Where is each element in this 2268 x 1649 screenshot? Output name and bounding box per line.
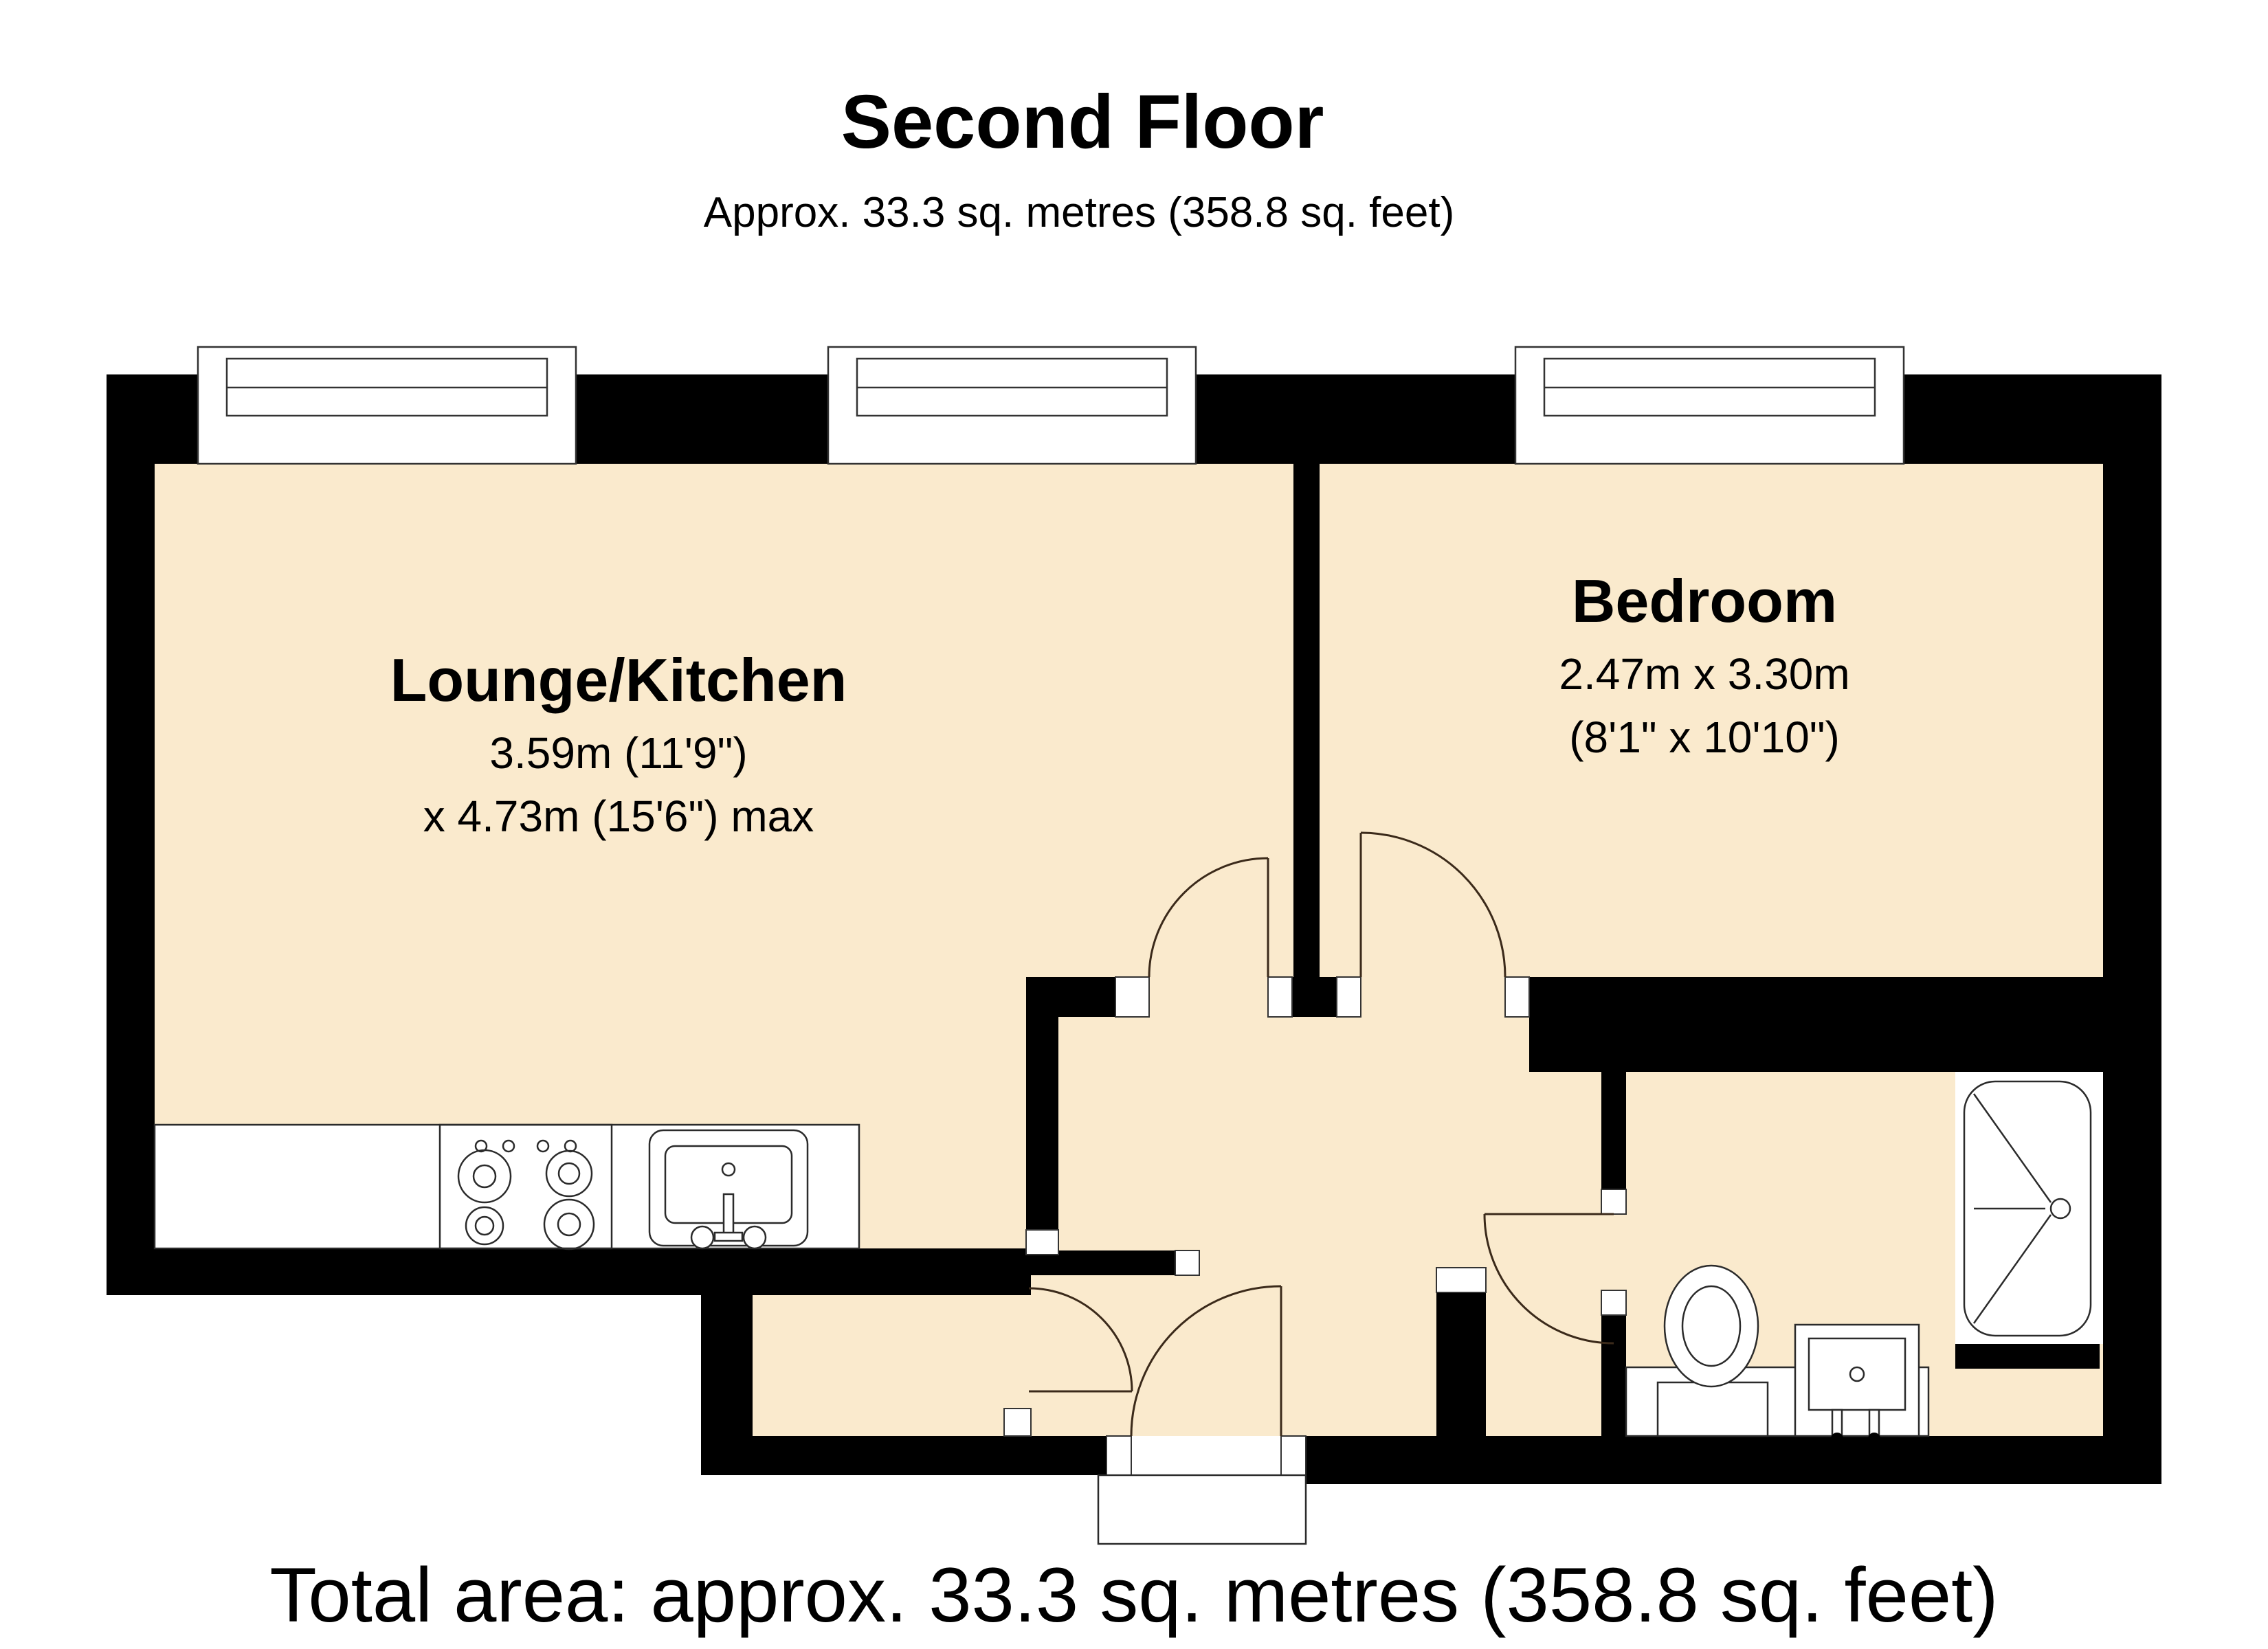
bedroom-dim2: (8'1" x 10'10") <box>1569 713 1840 762</box>
bedroom-name: Bedroom <box>1572 567 1837 635</box>
bedroom-window-icon <box>1515 347 1904 464</box>
floor-plan: Second Floor Approx. 33.3 sq. metres (35… <box>0 0 2268 1649</box>
lounge-window-right-icon <box>828 347 1196 464</box>
kitchen-sink-icon <box>649 1130 808 1248</box>
exterior-cutout <box>107 1295 701 1453</box>
bathtub-icon <box>1955 1072 2103 1344</box>
lounge-window-left-icon <box>198 347 576 464</box>
lounge-kitchen-dim2: x 4.73m (15'6") max <box>423 792 814 841</box>
bedroom-dim1: 2.47m x 3.30m <box>1559 649 1849 699</box>
entrance-porch <box>1098 1475 1306 1544</box>
page-title: Second Floor <box>841 80 1324 164</box>
kitchen-counter <box>155 1125 859 1249</box>
total-area-text: Total area: approx. 33.3 sq. metres (358… <box>269 1552 1998 1638</box>
washbasin-icon <box>1795 1325 1919 1445</box>
lounge-kitchen-dim1: 3.59m (11'9") <box>489 728 747 778</box>
page-subtitle: Approx. 33.3 sq. metres (358.8 sq. feet) <box>704 189 1454 236</box>
bedroom-label: Bedroom 2.47m x 3.30m (8'1" x 10'10") <box>1559 567 1849 762</box>
lounge-kitchen-name: Lounge/Kitchen <box>390 646 847 714</box>
